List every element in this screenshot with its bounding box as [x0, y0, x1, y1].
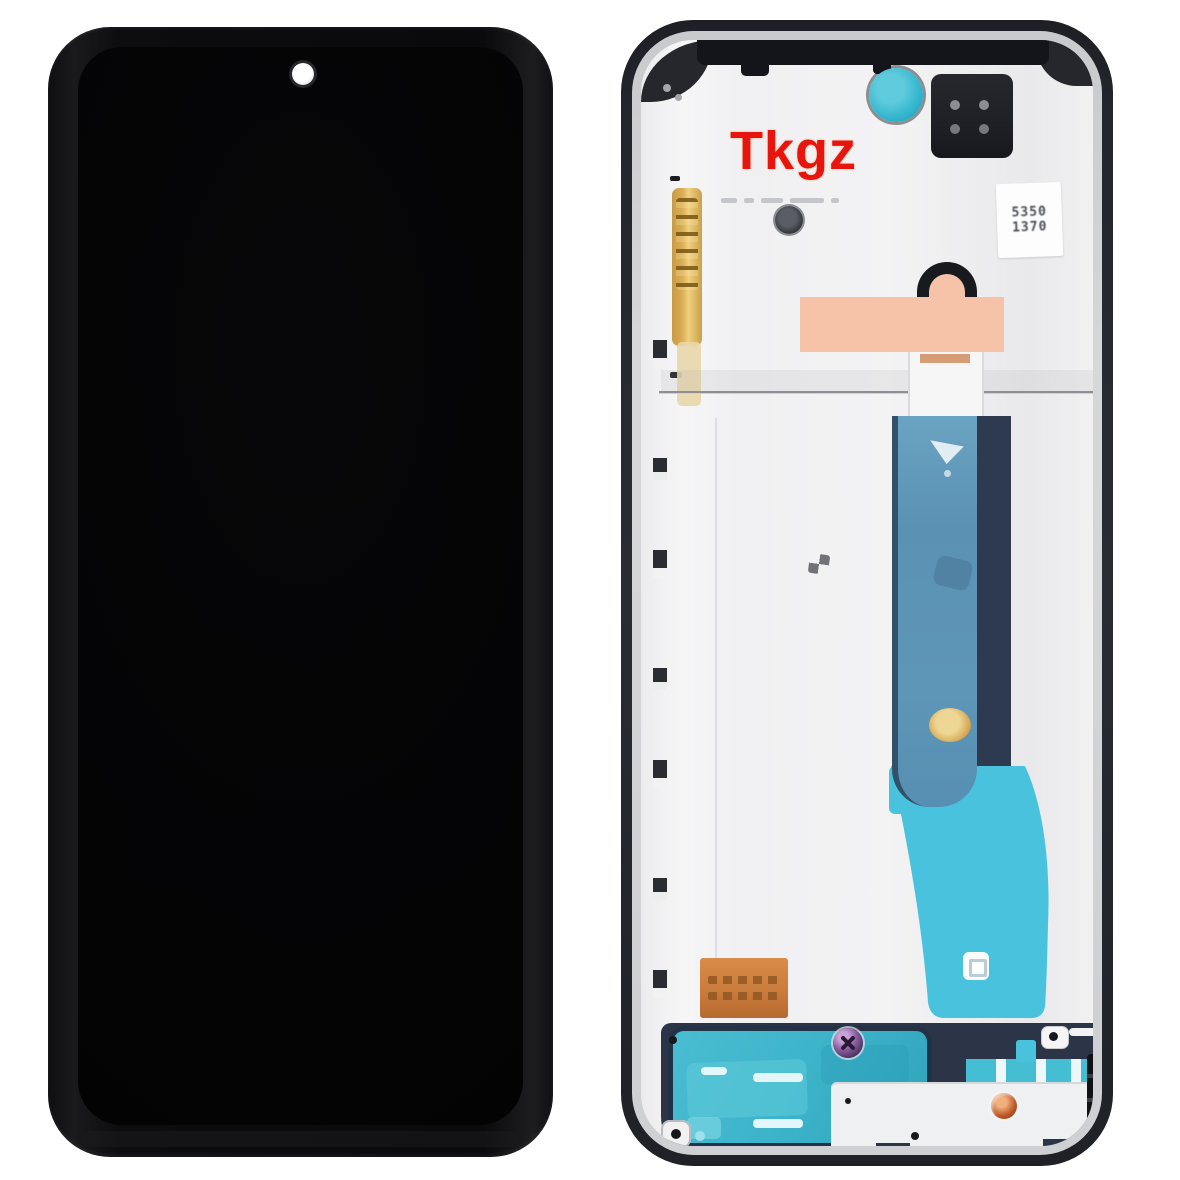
main-flex-ribbon	[892, 416, 977, 807]
bottom-bezel	[82, 1131, 519, 1147]
bracket-notch	[1043, 1139, 1083, 1146]
selfie-camera-hole	[292, 63, 314, 85]
product-photo: Tkgz 5350 1370	[0, 0, 1180, 1180]
screw-boss	[1041, 1026, 1069, 1049]
screw-hole	[911, 1132, 919, 1140]
flex-print-row	[708, 992, 778, 1000]
screw-hole	[1049, 1032, 1058, 1041]
flex-label-tag	[963, 952, 989, 980]
backplate: Tkgz 5350 1370	[641, 40, 1093, 1146]
screw-hole	[671, 1129, 681, 1139]
tag-inner-square	[969, 959, 987, 977]
speaker-mark	[753, 1119, 803, 1128]
speaker-mark	[701, 1067, 727, 1075]
flex-mark-dot	[944, 470, 951, 477]
orange-flex-cable	[700, 958, 788, 1018]
screw-hole	[669, 1036, 677, 1044]
back-frame-assembly: Tkgz 5350 1370	[621, 20, 1113, 1166]
antenna-rail-left	[653, 270, 667, 1050]
flex-gold-pad	[929, 708, 971, 742]
speaker-mark	[753, 1073, 803, 1082]
screw-purple	[833, 1028, 863, 1058]
screw-boss	[661, 1120, 691, 1146]
screw-orange	[991, 1093, 1017, 1119]
charging-port-bracket	[831, 1082, 1093, 1146]
lcd-screen	[78, 47, 523, 1125]
speaker-sheen	[821, 1045, 909, 1085]
flex-cyan-sliver	[1016, 1040, 1036, 1062]
front-lcd-assembly	[48, 27, 553, 1157]
bracket-notch	[876, 1143, 910, 1146]
speaker-mark	[695, 1131, 705, 1141]
bracket-arm	[1069, 1028, 1093, 1036]
screw-hole	[845, 1098, 851, 1104]
flex-print-row	[708, 976, 778, 984]
